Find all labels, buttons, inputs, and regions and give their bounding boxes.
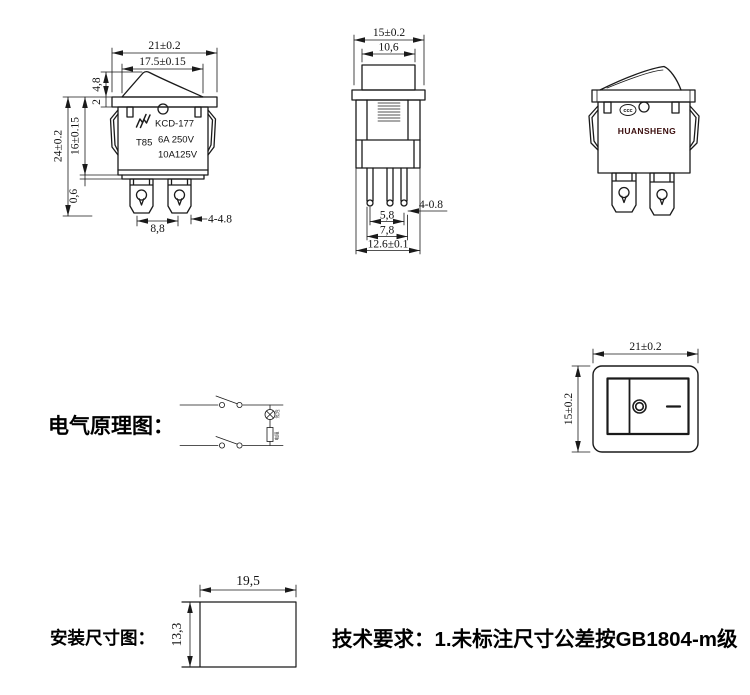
t-rating-marking: T85 [136,138,152,149]
pins-side [367,168,407,201]
front-view: 21±0.2 17.5±0.15 4,8 2 24±0.2 16±0.15 0,… [53,40,233,235]
terminal-3d-right [650,173,674,215]
rocker-actuator [122,72,203,97]
dim-panel-height: 15±0.2 [563,393,575,425]
dim-rocker-width: 17.5±0.15 [139,56,186,68]
electrical-schematic: 电气原理图： 氖泡 电阻 [48,396,283,448]
schematic-circuit [180,396,283,448]
dim-button-width: 10,6 [378,42,398,54]
perspective-view: ccc HUANSHENG [589,67,699,216]
dim-body-height: 16±0.15 [70,117,82,155]
rating-line1-marking: 6A 250V [158,135,195,146]
lamp-window [158,104,168,114]
dim-pin-span: 12.6±0.1 [368,239,409,251]
dim-width: 21±0.2 [148,40,180,52]
dim-pin-pitch-outer: 7,8 [380,225,395,237]
dim-cutout-height: 13,3 [169,622,184,646]
drawing-canvas: 21±0.2 17.5±0.15 4,8 2 24±0.2 16±0.15 0,… [0,0,750,695]
side-view-dimension-lines [354,35,447,254]
side-view-switch-body [352,65,425,206]
engineering-drawing-sheet: 21±0.2 17.5±0.15 4,8 2 24±0.2 16±0.15 0,… [0,0,750,695]
lamp-window-3d [639,102,649,112]
brand-name: HUANSHENG [618,126,676,136]
mounting-flange [112,97,217,107]
dim-pin-spacing: 8,8 [150,223,165,235]
housing-side [356,100,420,168]
ccc-cert-text: ccc [623,108,632,114]
dim-total-height: 24±0.2 [53,130,65,162]
flange-3d [592,90,695,102]
rating-line2-marking: 10A125V [158,150,198,161]
dim-pin-thickness: 4-0.8 [419,199,443,211]
panel-view-dimension-lines [572,349,698,452]
dim-flange-thickness: 2 [91,99,103,105]
dim-cutout-width: 19,5 [236,573,260,588]
installation-dimension-lines [190,585,296,667]
terminal-right [168,179,191,213]
terminal-3d-left [612,173,636,212]
schematic-label: 电气原理图： [48,414,174,438]
spring-ridges [378,103,400,121]
dim-pin-pitch-inner: 5,8 [380,210,395,222]
rocker-side [362,65,415,90]
dim-panel-width: 21±0.2 [629,341,661,353]
resistor-label: 电阻 [274,431,281,440]
dim-pin-size: 4-4.8 [208,214,232,226]
switch-pole-bottom [216,437,237,445]
lamp-label: 氖泡 [274,409,281,418]
installation-label: 安装尺寸图： [50,628,155,648]
model-marking: KCD-177 [155,119,194,130]
dim-side-width: 15±0.2 [373,27,405,39]
resistor-symbol [267,428,273,442]
dim-rocker-height: 4,8 [91,77,103,92]
dim-step: 0,6 [68,189,80,204]
side-view: 15±0.2 10,6 4-0.8 5,8 7,8 12.6±0.1 [352,27,447,254]
switch-pole-top [216,396,237,404]
flange-side [352,90,425,100]
snap-hook-left [111,110,119,155]
snap-hook-3d-right [690,106,699,150]
cutout-rectangle [182,602,296,667]
brand-logo-icon [137,115,151,128]
rocker-3d [600,67,681,91]
tech-requirements-note: 技术要求：1.未标注尺寸公差按GB1804-m级 [332,627,738,651]
terminal-left [130,179,153,213]
snap-hook-3d-left [589,106,598,150]
snap-hook-right [208,110,216,155]
panel-view: 21±0.2 15±0.2 [563,341,698,452]
installation-view: 安装尺寸图： 19,5 13,3 [50,573,296,667]
